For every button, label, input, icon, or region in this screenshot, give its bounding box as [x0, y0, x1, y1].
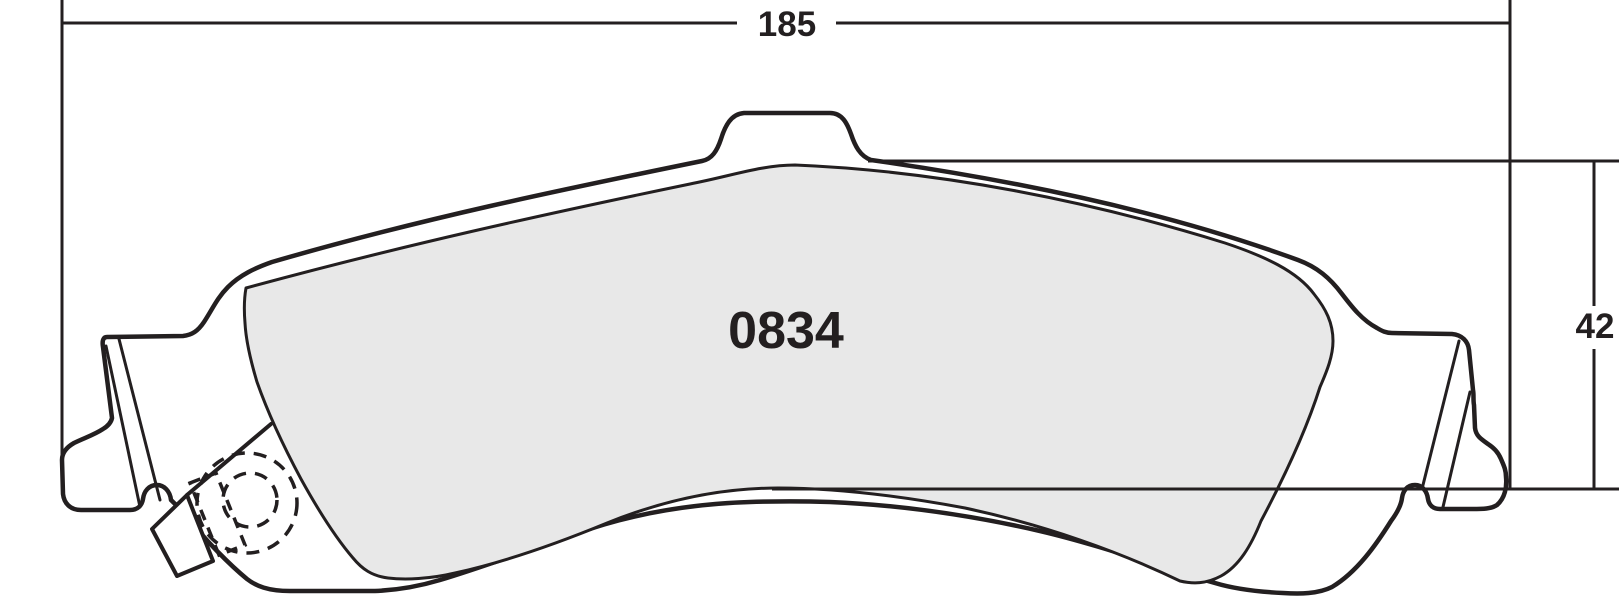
- technical-drawing-canvas: 185 42 0834: [0, 0, 1619, 597]
- part-number-label: 0834: [728, 302, 844, 360]
- height-dimension-label: 42: [1576, 307, 1615, 346]
- width-dimension-label: 185: [758, 5, 816, 44]
- brake-pad-drawing: 185 42 0834: [0, 0, 1619, 597]
